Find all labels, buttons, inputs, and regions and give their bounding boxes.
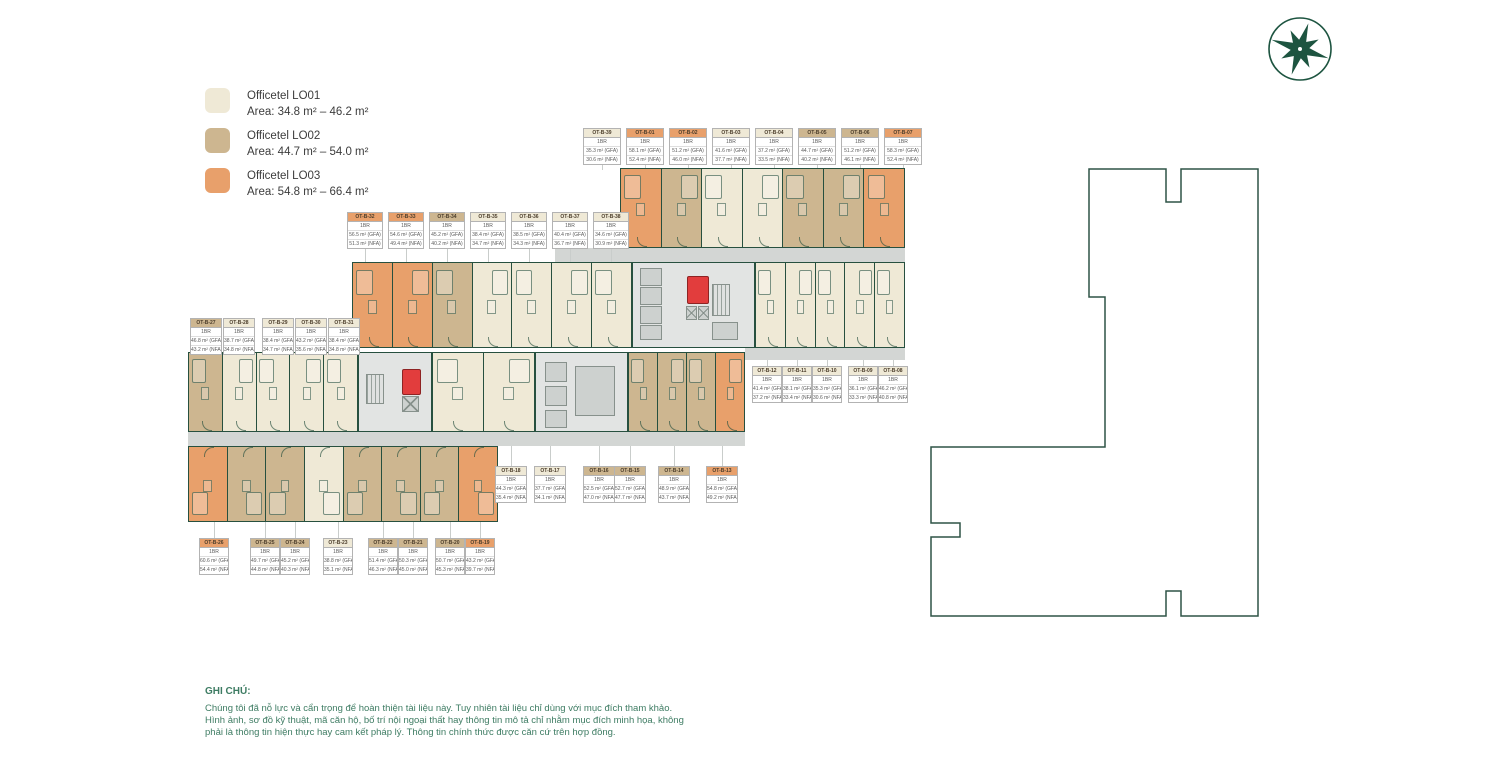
bed-furniture-icon xyxy=(595,270,612,296)
unit-cell xyxy=(228,447,267,521)
unit-gfa: 58.1 m² (GFA) xyxy=(627,147,663,156)
unit-cell xyxy=(189,447,228,521)
legend-type-name: Officetel LO02 xyxy=(247,128,368,144)
unit-gfa: 54.6 m² (GFA) xyxy=(389,231,423,240)
legend-item: Officetel LO01Area: 34.8 m² – 46.2 m² xyxy=(205,88,368,120)
bed-furniture-icon xyxy=(681,175,698,199)
unit-code: OT-B-39 xyxy=(584,129,620,138)
unit-code: OT-B-36 xyxy=(512,213,546,222)
unit-label-card: OT-B-391BR35.3 m² (GFA)30.6 m² (NFA) xyxy=(583,128,621,165)
unit-nfa: 34.1 m² (NFA) xyxy=(535,494,565,502)
unit-bedrooms: 1BR xyxy=(594,222,628,231)
unit-label-card: OT-B-381BR34.6 m² (GFA)30.9 m² (NFA) xyxy=(593,212,629,249)
door-arc-icon xyxy=(857,337,867,347)
unit-bedrooms: 1BR xyxy=(553,222,587,231)
unit-nfa: 44.8 m² (NFA) xyxy=(251,566,279,574)
unit-block-midRight xyxy=(628,352,745,432)
table-furniture-icon xyxy=(607,300,616,314)
unit-bedrooms: 1BR xyxy=(753,376,781,385)
unit-label-card: OT-B-031BR41.6 m² (GFA)37.7 m² (NFA) xyxy=(712,128,750,165)
unit-label-card: OT-B-271BR46.8 m² (GFA)43.2 m² (NFA) xyxy=(190,318,222,355)
unit-nfa: 34.8 m² (NFA) xyxy=(329,346,359,354)
unit-bedrooms: 1BR xyxy=(584,138,620,147)
table-furniture-icon xyxy=(358,480,367,492)
door-arc-icon xyxy=(369,337,379,347)
unit-code: OT-B-15 xyxy=(615,467,645,476)
unit-cell xyxy=(421,447,460,521)
unit-label-card: OT-B-141BR48.9 m² (GFA)43.7 m² (NFA) xyxy=(658,466,690,503)
legend: Officetel LO01Area: 34.8 m² – 46.2 m²Off… xyxy=(205,88,368,208)
label-leader-line xyxy=(338,522,339,538)
highlighted-elevator-2 xyxy=(402,369,421,395)
unit-nfa: 49.2 m² (NFA) xyxy=(707,494,737,502)
unit-gfa: 50.7 m² (GFA) xyxy=(436,557,464,566)
label-leader-line xyxy=(674,446,675,466)
unit-gfa: 43.2 m² (GFA) xyxy=(296,337,326,346)
stairs xyxy=(366,374,384,404)
legend-color-swatch xyxy=(205,88,230,113)
label-leader-line xyxy=(480,522,481,538)
unit-cell xyxy=(393,263,433,347)
unit-code: OT-B-20 xyxy=(436,539,464,548)
table-furniture-icon xyxy=(677,203,686,216)
door-arc-icon xyxy=(270,421,280,431)
unit-gfa: 52.7 m² (GFA) xyxy=(615,485,645,494)
table-furniture-icon xyxy=(717,203,726,216)
unit-label-card: OT-B-311BR38.4 m² (GFA)34.8 m² (NFA) xyxy=(328,318,360,355)
unit-bedrooms: 1BR xyxy=(535,476,565,485)
label-leader-line xyxy=(295,522,296,538)
unit-code: OT-B-23 xyxy=(324,539,352,548)
unit-nfa: 47.0 m² (NFA) xyxy=(584,494,614,502)
unit-label-card: OT-B-081BR46.2 m² (GFA)40.8 m² (NFA) xyxy=(878,366,908,403)
door-arc-icon xyxy=(827,337,837,347)
unit-label-card: OT-B-131BR54.8 m² (GFA)49.2 m² (NFA) xyxy=(706,466,738,503)
unit-code: OT-B-12 xyxy=(753,367,781,376)
table-furniture-icon xyxy=(727,387,734,400)
bed-furniture-icon xyxy=(762,175,779,199)
unit-bedrooms: 1BR xyxy=(466,548,494,557)
unit-label-card: OT-B-101BR35.3 m² (GFA)30.6 m² (NFA) xyxy=(812,366,842,403)
unit-cell xyxy=(658,353,687,431)
bed-furniture-icon xyxy=(306,359,320,383)
unit-nfa: 43.7 m² (NFA) xyxy=(659,494,689,502)
door-arc-icon xyxy=(448,337,458,347)
unit-code: OT-B-14 xyxy=(659,467,689,476)
lift-shaft xyxy=(640,268,662,286)
legend-label: Officetel LO03Area: 54.8 m² – 66.4 m² xyxy=(247,168,368,200)
lift-shaft xyxy=(402,396,419,412)
table-furniture-icon xyxy=(698,387,705,400)
door-arc-icon xyxy=(504,421,514,431)
bed-furniture-icon xyxy=(478,492,494,515)
unit-label-card: OT-B-021BR51.2 m² (GFA)46.0 m² (NFA) xyxy=(669,128,707,165)
unit-code: OT-B-19 xyxy=(466,539,494,548)
unit-cell xyxy=(824,169,865,247)
note-line: phải là thông tin hiện thực hay cam kết … xyxy=(205,727,685,739)
bed-furniture-icon xyxy=(843,175,860,199)
unit-bedrooms: 1BR xyxy=(584,476,614,485)
unit-label-card: OT-B-041BR37.2 m² (GFA)33.5 m² (NFA) xyxy=(755,128,793,165)
lift-shaft xyxy=(545,410,567,428)
unit-code: OT-B-18 xyxy=(496,467,526,476)
note-title: GHI CHÚ: xyxy=(205,686,685,697)
bed-furniture-icon xyxy=(624,175,641,199)
unit-gfa: 38.7 m² (GFA) xyxy=(224,337,254,346)
door-arc-icon xyxy=(202,421,212,431)
unit-label-card: OT-B-061BR51.2 m² (GFA)46.1 m² (NFA) xyxy=(841,128,879,165)
unit-label-card: OT-B-211BR50.3 m² (GFA)45.0 m² (NFA) xyxy=(398,538,428,575)
unit-code: OT-B-09 xyxy=(849,367,877,376)
label-leader-line xyxy=(722,446,723,466)
unit-bedrooms: 1BR xyxy=(281,548,309,557)
unit-gfa: 52.5 m² (GFA) xyxy=(584,485,614,494)
lift-shaft xyxy=(640,306,662,324)
unit-cell xyxy=(382,447,421,521)
table-furniture-icon xyxy=(798,203,807,216)
door-arc-icon xyxy=(887,337,897,347)
note-line: Hình ảnh, sơ đồ kỹ thuật, mã căn hộ, bố … xyxy=(205,715,685,727)
unit-gfa: 38.4 m² (GFA) xyxy=(329,337,359,346)
unit-label-card: OT-B-291BR38.4 m² (GFA)34.7 m² (NFA) xyxy=(262,318,294,355)
bed-furniture-icon xyxy=(516,270,533,296)
unit-code: OT-B-01 xyxy=(627,129,663,138)
unit-bedrooms: 1BR xyxy=(224,328,254,337)
table-furniture-icon xyxy=(281,480,290,492)
door-arc-icon xyxy=(797,337,807,347)
unit-gfa: 46.8 m² (GFA) xyxy=(191,337,221,346)
unit-code: OT-B-04 xyxy=(756,129,792,138)
unit-code: OT-B-22 xyxy=(369,539,397,548)
highlighted-elevator-1 xyxy=(687,276,709,304)
unit-bedrooms: 1BR xyxy=(879,376,907,385)
unit-cell xyxy=(305,447,344,521)
bed-furniture-icon xyxy=(671,359,684,383)
door-arc-icon xyxy=(718,237,728,247)
unit-block-top xyxy=(620,168,905,248)
bed-furniture-icon xyxy=(729,359,742,383)
unit-label-card: OT-B-351BR38.4 m² (GFA)34.7 m² (NFA) xyxy=(470,212,506,249)
unit-cell xyxy=(864,169,904,247)
lift-shaft xyxy=(545,362,567,382)
unit-cell xyxy=(484,353,534,431)
unit-bedrooms: 1BR xyxy=(348,222,382,231)
unit-bedrooms: 1BR xyxy=(849,376,877,385)
unit-label-card: OT-B-011BR58.1 m² (GFA)52.4 m² (NFA) xyxy=(626,128,664,165)
bed-furniture-icon xyxy=(400,492,416,515)
building-outline-keyplan xyxy=(920,160,1265,625)
door-arc-icon xyxy=(337,421,347,431)
unit-nfa: 35.4 m² (NFA) xyxy=(496,494,526,502)
unit-cell xyxy=(512,263,552,347)
lift-shaft xyxy=(698,306,709,320)
corridor-main xyxy=(188,432,745,446)
unit-bedrooms: 1BR xyxy=(399,548,427,557)
floor-plan-page: Officetel LO01Area: 34.8 m² – 46.2 m²Off… xyxy=(0,0,1500,764)
unit-label-card: OT-B-231BR38.8 m² (GFA)35.1 m² (NFA) xyxy=(323,538,353,575)
door-arc-icon xyxy=(608,337,618,347)
unit-cell xyxy=(716,353,744,431)
unit-nfa: 35.6 m² (NFA) xyxy=(296,346,326,354)
table-furniture-icon xyxy=(201,387,209,400)
table-furniture-icon xyxy=(527,300,536,314)
unit-nfa: 40.2 m² (NFA) xyxy=(799,156,835,164)
unit-cell xyxy=(743,169,784,247)
unit-bedrooms: 1BR xyxy=(324,548,352,557)
unit-code: OT-B-21 xyxy=(399,539,427,548)
unit-gfa: 44.3 m² (GFA) xyxy=(496,485,526,494)
brand-star-logo-icon xyxy=(1266,15,1334,83)
door-arc-icon xyxy=(677,237,687,247)
unit-code: OT-B-24 xyxy=(281,539,309,548)
unit-label-card: OT-B-181BR44.3 m² (GFA)35.4 m² (NFA) xyxy=(495,466,527,503)
door-arc-icon xyxy=(359,447,369,457)
unit-nfa: 33.4 m² (NFA) xyxy=(783,394,811,402)
unit-cell xyxy=(433,353,484,431)
bed-furniture-icon xyxy=(705,175,722,199)
unit-label-card: OT-B-261BR60.6 m² (GFA)54.4 m² (NFA) xyxy=(199,538,229,575)
door-arc-icon xyxy=(640,421,650,431)
stairs xyxy=(712,284,730,316)
unit-nfa: 33.5 m² (NFA) xyxy=(756,156,792,164)
table-furniture-icon xyxy=(368,300,377,314)
unit-label-card: OT-B-051BR44.7 m² (GFA)40.2 m² (NFA) xyxy=(798,128,836,165)
unit-gfa: 37.2 m² (GFA) xyxy=(756,147,792,156)
table-furniture-icon xyxy=(886,300,893,314)
door-arc-icon xyxy=(453,421,463,431)
lift-shaft xyxy=(640,287,662,305)
unit-label-card: OT-B-301BR43.2 m² (GFA)35.6 m² (NFA) xyxy=(295,318,327,355)
table-furniture-icon xyxy=(203,480,212,492)
unit-gfa: 43.2 m² (GFA) xyxy=(466,557,494,566)
unit-cell xyxy=(662,169,703,247)
unit-bedrooms: 1BR xyxy=(756,138,792,147)
label-leader-line xyxy=(450,522,451,538)
door-arc-icon xyxy=(236,421,246,431)
unit-bedrooms: 1BR xyxy=(200,548,228,557)
unit-bedrooms: 1BR xyxy=(713,138,749,147)
bed-furniture-icon xyxy=(412,270,429,296)
bed-furniture-icon xyxy=(192,359,206,383)
unit-nfa: 47.7 m² (NFA) xyxy=(615,494,645,502)
bed-furniture-icon xyxy=(424,492,440,515)
unit-label-card: OT-B-171BR37.7 m² (GFA)34.1 m² (NFA) xyxy=(534,466,566,503)
table-furniture-icon xyxy=(319,480,328,492)
unit-nfa: 45.3 m² (NFA) xyxy=(436,566,464,574)
unit-code: OT-B-25 xyxy=(251,539,279,548)
unit-label-card: OT-B-341BR45.2 m² (GFA)40.2 m² (NFA) xyxy=(429,212,465,249)
service-room xyxy=(575,366,615,416)
unit-gfa: 36.1 m² (GFA) xyxy=(849,385,877,394)
bed-furniture-icon xyxy=(192,492,208,515)
unit-bedrooms: 1BR xyxy=(369,548,397,557)
unit-code: OT-B-10 xyxy=(813,367,841,376)
table-furniture-icon xyxy=(839,203,848,216)
door-arc-icon xyxy=(880,237,890,247)
unit-label-card: OT-B-201BR50.7 m² (GFA)45.3 m² (NFA) xyxy=(435,538,465,575)
unit-label-card: OT-B-251BR49.7 m² (GFA)44.8 m² (NFA) xyxy=(250,538,280,575)
unit-nfa: 40.8 m² (NFA) xyxy=(879,394,907,402)
label-leader-line xyxy=(383,522,384,538)
unit-label-card: OT-B-371BR40.4 m² (GFA)36.7 m² (NFA) xyxy=(552,212,588,249)
door-arc-icon xyxy=(408,337,418,347)
unit-cell xyxy=(592,263,631,347)
table-furniture-icon xyxy=(880,203,889,216)
unit-cell xyxy=(687,353,716,431)
table-furniture-icon xyxy=(408,300,417,314)
door-arc-icon xyxy=(281,447,291,457)
unit-bedrooms: 1BR xyxy=(251,548,279,557)
unit-nfa: 37.7 m² (NFA) xyxy=(713,156,749,164)
unit-code: OT-B-11 xyxy=(783,367,811,376)
legend-area-range: Area: 34.8 m² – 46.2 m² xyxy=(247,104,368,120)
bed-furniture-icon xyxy=(356,270,373,296)
legend-color-swatch xyxy=(205,128,230,153)
bed-furniture-icon xyxy=(436,270,453,296)
legend-label: Officetel LO01Area: 34.8 m² – 46.2 m² xyxy=(247,88,368,120)
bed-furniture-icon xyxy=(509,359,530,383)
unit-nfa: 45.0 m² (NFA) xyxy=(399,566,427,574)
unit-code: OT-B-38 xyxy=(594,213,628,222)
unit-code: OT-B-32 xyxy=(348,213,382,222)
unit-gfa: 38.8 m² (GFA) xyxy=(324,557,352,566)
door-arc-icon xyxy=(568,337,578,347)
unit-code: OT-B-08 xyxy=(879,367,907,376)
legend-color-swatch xyxy=(205,168,230,193)
unit-block-midCenter xyxy=(432,352,535,432)
service-room xyxy=(712,322,738,340)
unit-label-card: OT-B-331BR54.6 m² (GFA)49.4 m² (NFA) xyxy=(388,212,424,249)
unit-gfa: 50.3 m² (GFA) xyxy=(399,557,427,566)
unit-nfa: 52.4 m² (NFA) xyxy=(627,156,663,164)
unit-gfa: 60.6 m² (GFA) xyxy=(200,557,228,566)
unit-bedrooms: 1BR xyxy=(329,328,359,337)
table-furniture-icon xyxy=(269,387,277,400)
unit-label-card: OT-B-161BR52.5 m² (GFA)47.0 m² (NFA) xyxy=(583,466,615,503)
unit-bedrooms: 1BR xyxy=(659,476,689,485)
unit-gfa: 38.4 m² (GFA) xyxy=(263,337,293,346)
unit-nfa: 34.7 m² (NFA) xyxy=(263,346,293,354)
unit-gfa: 41.4 m² (GFA) xyxy=(753,385,781,394)
bed-furniture-icon xyxy=(877,270,890,296)
corridor-right xyxy=(745,348,905,360)
bed-furniture-icon xyxy=(327,359,341,383)
unit-block-rightMid xyxy=(755,262,905,348)
unit-gfa: 56.5 m² (GFA) xyxy=(348,231,382,240)
table-furniture-icon xyxy=(767,300,774,314)
door-arc-icon xyxy=(474,447,484,457)
bed-furniture-icon xyxy=(259,359,273,383)
unit-gfa: 51.2 m² (GFA) xyxy=(670,147,706,156)
unit-gfa: 41.6 m² (GFA) xyxy=(713,147,749,156)
label-leader-line xyxy=(599,446,600,466)
unit-code: OT-B-34 xyxy=(430,213,464,222)
unit-block-midLeft xyxy=(188,352,358,432)
unit-bedrooms: 1BR xyxy=(512,222,546,231)
unit-bedrooms: 1BR xyxy=(436,548,464,557)
door-arc-icon xyxy=(243,447,253,457)
unit-code: OT-B-27 xyxy=(191,319,221,328)
bed-furniture-icon xyxy=(347,492,363,515)
unit-label-card: OT-B-361BR38.5 m² (GFA)34.3 m² (NFA) xyxy=(511,212,547,249)
table-furniture-icon xyxy=(856,300,863,314)
unit-code: OT-B-13 xyxy=(707,467,737,476)
unit-bedrooms: 1BR xyxy=(615,476,645,485)
unit-nfa: 39.7 m² (NFA) xyxy=(466,566,494,574)
door-arc-icon xyxy=(488,337,498,347)
unit-code: OT-B-06 xyxy=(842,129,878,138)
unit-label-card: OT-B-241BR45.2 m² (GFA)40.3 m² (NFA) xyxy=(280,538,310,575)
table-furniture-icon xyxy=(503,387,514,400)
unit-code: OT-B-37 xyxy=(553,213,587,222)
unit-label-card: OT-B-151BR52.7 m² (GFA)47.7 m² (NFA) xyxy=(614,466,646,503)
door-arc-icon xyxy=(759,237,769,247)
bed-furniture-icon xyxy=(786,175,803,199)
lift-shaft xyxy=(686,306,697,320)
door-arc-icon xyxy=(768,337,778,347)
unit-cell xyxy=(257,353,291,431)
unit-cell xyxy=(459,447,497,521)
unit-gfa: 38.4 m² (GFA) xyxy=(471,231,505,240)
unit-nfa: 30.6 m² (NFA) xyxy=(584,156,620,164)
unit-bedrooms: 1BR xyxy=(885,138,921,147)
unit-gfa: 38.1 m² (GFA) xyxy=(783,385,811,394)
table-furniture-icon xyxy=(235,387,243,400)
unit-nfa: 34.3 m² (NFA) xyxy=(512,240,546,248)
unit-cell xyxy=(290,353,324,431)
unit-code: OT-B-16 xyxy=(584,467,614,476)
unit-gfa: 45.2 m² (GFA) xyxy=(281,557,309,566)
label-leader-line xyxy=(630,446,631,466)
unit-code: OT-B-29 xyxy=(263,319,293,328)
door-arc-icon xyxy=(204,447,214,457)
unit-nfa: 54.4 m² (NFA) xyxy=(200,566,228,574)
bed-furniture-icon xyxy=(323,492,339,515)
table-furniture-icon xyxy=(452,387,463,400)
unit-label-card: OT-B-071BR58.3 m² (GFA)52.4 m² (NFA) xyxy=(884,128,922,165)
unit-code: OT-B-33 xyxy=(389,213,423,222)
unit-gfa: 45.2 m² (GFA) xyxy=(430,231,464,240)
bed-furniture-icon xyxy=(799,270,812,296)
unit-nfa: 30.9 m² (NFA) xyxy=(594,240,628,248)
unit-cell xyxy=(786,263,816,347)
table-furniture-icon xyxy=(827,300,834,314)
unit-bedrooms: 1BR xyxy=(471,222,505,231)
unit-cell xyxy=(845,263,875,347)
door-arc-icon xyxy=(840,237,850,247)
unit-gfa: 49.7 m² (GFA) xyxy=(251,557,279,566)
lift-shaft xyxy=(545,386,567,406)
unit-code: OT-B-05 xyxy=(799,129,835,138)
unit-gfa: 37.7 m² (GFA) xyxy=(535,485,565,494)
unit-bedrooms: 1BR xyxy=(670,138,706,147)
bed-furniture-icon xyxy=(868,175,885,199)
bed-furniture-icon xyxy=(492,270,509,296)
door-arc-icon xyxy=(320,447,330,457)
table-furniture-icon xyxy=(396,480,405,492)
legend-area-range: Area: 54.8 m² – 66.4 m² xyxy=(247,184,368,200)
unit-bedrooms: 1BR xyxy=(799,138,835,147)
note-line: Chúng tôi đã nỗ lực và cẩn trọng để hoàn… xyxy=(205,703,685,715)
label-leader-line xyxy=(413,522,414,538)
unit-bedrooms: 1BR xyxy=(707,476,737,485)
unit-nfa: 51.3 m² (NFA) xyxy=(348,240,382,248)
door-arc-icon xyxy=(397,447,407,457)
label-leader-line xyxy=(214,522,215,538)
unit-nfa: 43.2 m² (NFA) xyxy=(191,346,221,354)
bed-furniture-icon xyxy=(631,359,644,383)
bed-furniture-icon xyxy=(689,359,702,383)
